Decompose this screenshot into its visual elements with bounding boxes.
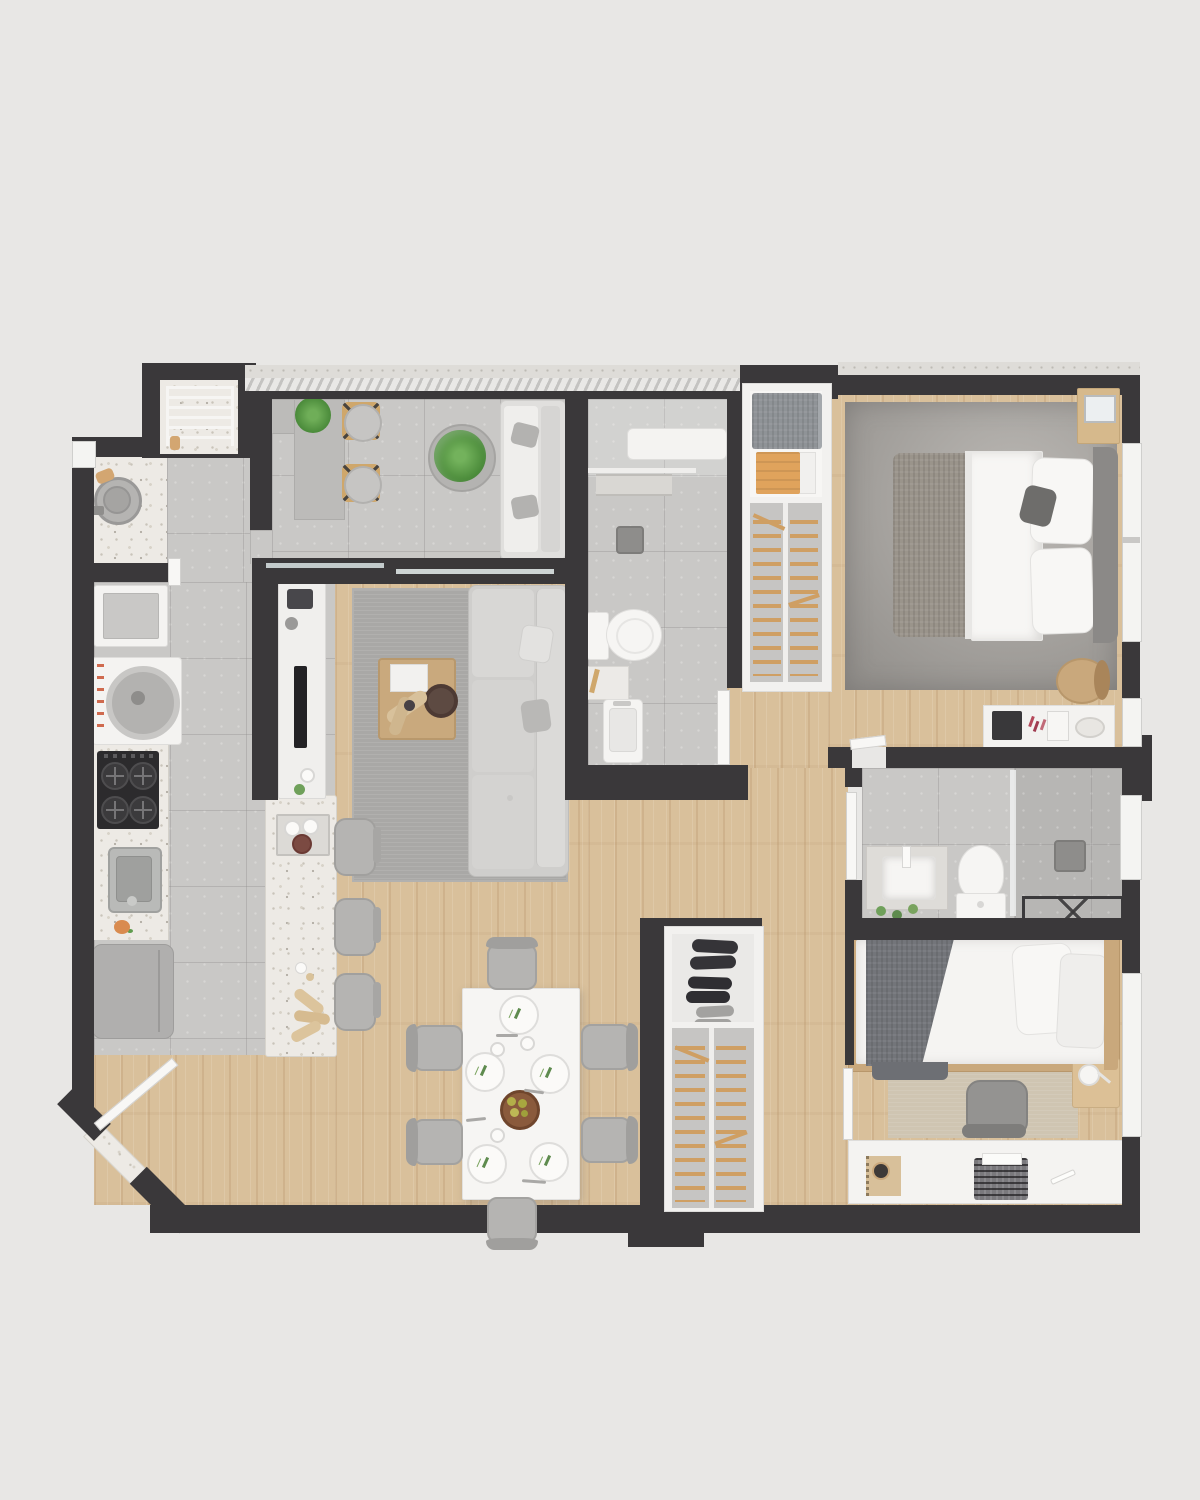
plate-5 [529,1142,569,1182]
coffee-table-bowl [424,684,458,718]
bed-1-headboard [1093,447,1118,643]
balcony-stool-1 [344,404,382,442]
refrigerator-door-line [158,950,160,1032]
kitchen-flower-decor [114,920,130,934]
plate-4 [467,1144,507,1184]
washing-machine-hub [131,691,145,705]
dining-cup-1 [490,1042,505,1057]
burner-1 [101,762,129,790]
sofa-seat-cushion-2 [472,775,534,869]
wardrobe-2-center-divider [709,1028,714,1208]
floor-lamp-stem [507,795,513,801]
utility-sink-basin [103,593,159,639]
bar-stool-2 [334,898,376,956]
dining-chair-east-2 [581,1117,631,1163]
window-bedroom2 [1122,973,1142,1137]
wardrobe-2-rail-left [675,1036,705,1202]
sliding-door-glass-1 [266,563,384,568]
plate-1 [499,995,539,1035]
fruit-bowl [500,1090,540,1130]
balcony-ledge [245,365,740,378]
sofa-pillow-2 [520,698,552,734]
bed-2-headboard [1104,934,1118,1070]
bedroom-1-outer-ledge [838,362,1140,375]
desk-chair-back [962,1124,1026,1138]
shower-bench [627,428,727,460]
wall-bedroom1-bottom-right [886,747,1122,768]
balcony-potted-plant [295,397,331,433]
door-bathroom2 [846,792,857,880]
desk-coffee-cup [872,1162,890,1180]
wall-balcony-inner-line [245,391,740,399]
window-bedroom1-mullion [1122,537,1140,543]
bed-1-knit-throw [893,453,973,637]
laundry-tub-basin [103,486,131,514]
vanity-tablet [992,711,1022,740]
tray-bowl [292,834,312,854]
coffee-table-books [390,664,428,692]
door-service [168,558,181,586]
shoe-dark-1b [690,955,736,970]
shoe-dark-2b [686,991,730,1003]
shower-2-glass-screen [1010,770,1016,916]
window-bathroom2 [1120,795,1142,880]
wall-bath1-south [565,765,748,800]
dining-chair-south [487,1197,537,1243]
dining-chair-east-1 [581,1024,631,1070]
floor-plan [0,0,1200,1500]
sliding-door-glass-2 [396,569,554,574]
kitchen-sink-basin [116,856,152,902]
window-service [72,441,96,468]
console-cup [300,768,315,783]
wall-bedroom2-left-stub [845,940,854,1065]
tray-cup-2 [302,818,319,835]
sofa-pillow-1 [517,624,554,665]
toilet-2-bowl [958,845,1004,899]
wardrobe-2-rail-right [716,1036,746,1202]
shoe-dark-1a [692,939,739,954]
console-plant [294,784,305,795]
island-candle [295,962,307,974]
table-lamp-shade [1078,1064,1100,1086]
dining-chair-west-2 [413,1119,463,1165]
shower-mixer [616,526,644,554]
cooktop-knobs [104,754,154,758]
wardrobe-1-rail-left [753,510,781,676]
vanity-palette [1047,711,1069,741]
bath-2-plants [876,906,886,916]
bar-stool-1 [334,818,376,876]
balcony-sofa-back [541,406,560,552]
shoe-light-3a [696,1005,735,1018]
washbasin-1-faucet [613,701,631,706]
console-disc [285,617,298,630]
dining-cup-2 [520,1036,535,1051]
shower-glass-line [588,468,696,473]
burner-4 [129,796,157,824]
console-speaker [287,589,313,609]
shower-step [596,474,672,496]
washing-machine-drum [106,666,180,740]
wall-bath2-left-lower [845,880,862,918]
bed-1-pillow-bottom [1030,547,1095,635]
wall-bath2-left-upper [845,768,862,787]
wall-left [72,437,94,1118]
vanity-tray [1075,717,1105,738]
wall-bottom [150,1205,1140,1233]
balcony-stool-2 [344,466,382,504]
refrigerator [92,944,174,1039]
grass-vase [404,700,415,711]
fruit-bowl-pears [507,1097,516,1106]
shower-2-mixer [1054,840,1086,872]
wardrobe-1-orange-towels [756,452,800,494]
door-bathroom1 [717,690,730,765]
washbasin-1-bowl [609,708,637,752]
page-background [0,0,1200,1500]
dining-chair-north [487,944,537,990]
plate-2 [465,1052,505,1092]
wall-tv-halfwall [252,582,278,800]
clothespin-bag [170,436,180,450]
dining-chair-west-1 [413,1025,463,1071]
balcony-sofa-pillow-2 [510,494,539,520]
wall-service-kitchen [90,563,168,582]
nightstand-clock [1084,395,1116,423]
tv-panel [294,666,307,748]
balcony-glazed-railing [245,378,740,391]
cutlery-1 [496,1034,518,1037]
window-vanity [1122,698,1142,747]
burner-3 [101,796,129,824]
wall-bedroom1-bottom-left [828,747,852,768]
door-bedroom2 [843,1068,853,1140]
dining-cup-3 [490,1128,505,1143]
shoe-dark-2a [688,976,732,990]
typewriter-paper [982,1153,1022,1165]
burner-2 [129,762,157,790]
wall-bottom-notch [628,1233,704,1247]
toilet-1-seat [616,618,654,654]
bedroom-1-chair-back [1094,660,1110,700]
wardrobe-1-rail-right [790,510,818,676]
plate-3 [530,1054,570,1094]
kitchen-faucet [127,896,137,906]
washing-machine-controls [97,664,104,734]
wall-bath2-bedroom2 [845,918,1122,940]
bed-2-blanket-drape [872,1062,948,1080]
washbasin-2-faucet [902,846,911,868]
wardrobe-1-gray-blanket [752,393,822,449]
bed-2-pillow-2 [1056,953,1109,1049]
bar-stool-3 [334,973,376,1031]
balcony-fern [434,430,486,482]
toilet-2-flush [977,901,984,908]
